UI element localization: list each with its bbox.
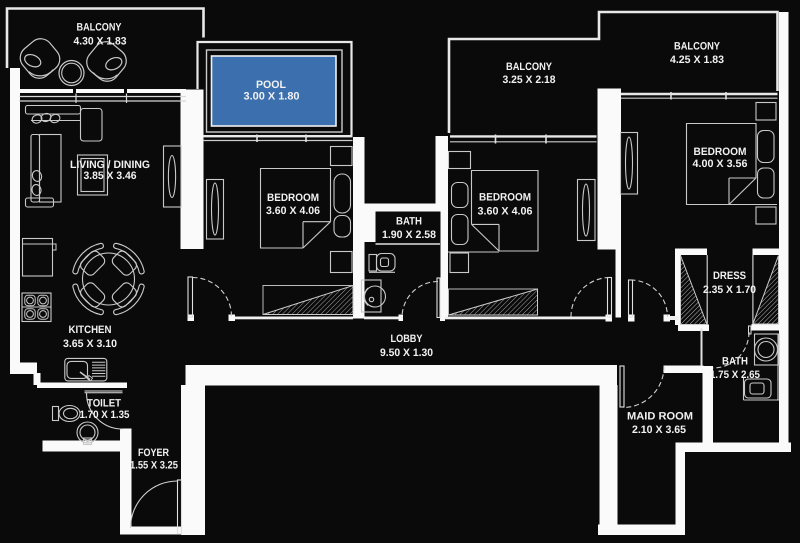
- svg-text:4.00 X 3.56: 4.00 X 3.56: [693, 158, 748, 170]
- svg-text:1.70 X 1.35: 1.70 X 1.35: [80, 409, 130, 421]
- svg-text:4.30 X 1.83: 4.30 X 1.83: [74, 36, 127, 48]
- svg-text:3.00 X 1.80: 3.00 X 1.80: [244, 91, 300, 103]
- svg-text:9.50 X 1.30: 9.50 X 1.30: [380, 347, 433, 359]
- svg-text:3.60 X 4.06: 3.60 X 4.06: [478, 206, 533, 218]
- svg-text:POOL: POOL: [256, 79, 286, 91]
- svg-text:1.90 X 2.58: 1.90 X 2.58: [382, 229, 436, 241]
- svg-text:2.35 X 1.70: 2.35 X 1.70: [703, 284, 756, 296]
- svg-text:3.25 X 2.18: 3.25 X 2.18: [503, 74, 556, 86]
- svg-text:LOBBY: LOBBY: [391, 333, 424, 345]
- svg-text:FOYER: FOYER: [138, 447, 169, 459]
- svg-text:MAID ROOM: MAID ROOM: [627, 411, 693, 423]
- svg-text:BEDROOM: BEDROOM: [267, 192, 319, 204]
- svg-text:BATH: BATH: [722, 356, 748, 368]
- svg-text:BALCONY: BALCONY: [674, 41, 721, 53]
- svg-text:BALCONY: BALCONY: [77, 22, 123, 34]
- svg-text:BEDROOM: BEDROOM: [694, 146, 747, 158]
- svg-text:2.10 X 3.65: 2.10 X 3.65: [632, 424, 686, 436]
- svg-text:3.85 X 3.46: 3.85 X 3.46: [84, 170, 137, 182]
- svg-text:KITCHEN: KITCHEN: [69, 324, 112, 336]
- svg-text:TOILET: TOILET: [87, 398, 121, 410]
- svg-text:3.60 X 4.06: 3.60 X 4.06: [266, 205, 320, 217]
- svg-text:DRESS: DRESS: [713, 270, 746, 282]
- svg-text:BALCONY: BALCONY: [506, 61, 553, 73]
- svg-text:1.75 X 2.65: 1.75 X 2.65: [710, 369, 760, 381]
- svg-text:1.55 X 3.25: 1.55 X 3.25: [130, 460, 178, 472]
- svg-text:4.25 X 1.83: 4.25 X 1.83: [670, 54, 724, 66]
- svg-text:3.65 X 3.10: 3.65 X 3.10: [63, 338, 117, 350]
- svg-text:BEDROOM: BEDROOM: [479, 192, 531, 204]
- svg-text:BATH: BATH: [396, 216, 422, 228]
